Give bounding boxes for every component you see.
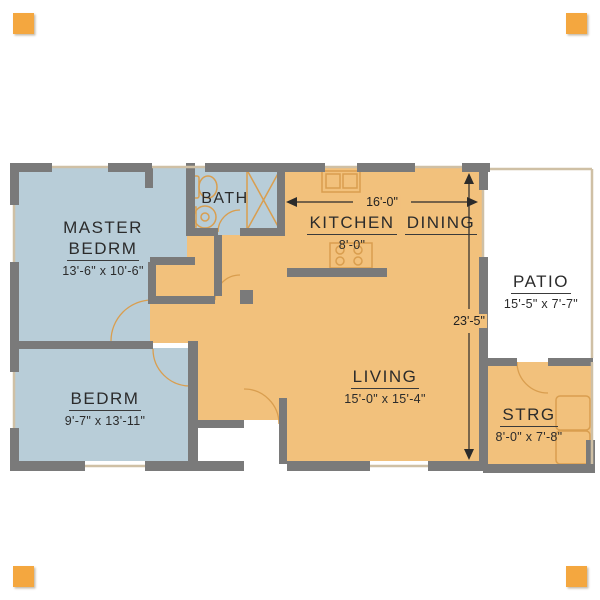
overall-width-dimension: 16'-0"	[364, 195, 400, 209]
master-bedroom-label: MASTER BEDRM 13'-6" x 10'-6"	[30, 217, 176, 278]
room-label: KITCHEN	[307, 212, 396, 235]
room-dimensions: 9'-7" x 13'-11"	[30, 414, 180, 428]
bedroom-label: BEDRM 9'-7" x 13'-11"	[30, 388, 180, 428]
room-dimensions: 8'-0" x 7'-8"	[477, 430, 581, 444]
kitchen-label: KITCHEN 8'-0"	[300, 212, 404, 252]
overall-height-dimension: 23'-5"	[451, 314, 487, 328]
storage-label: STRG 8'-0" x 7'-8"	[477, 404, 581, 444]
room-label: BEDRM	[69, 388, 142, 411]
dining-label: DINING	[399, 212, 483, 235]
room-dimensions: 13'-6" x 10'-6"	[30, 264, 176, 278]
room-label: LIVING	[351, 366, 420, 389]
bath-label: BATH	[194, 188, 256, 209]
room-dimensions: 15'-0" x 15'-4"	[325, 392, 445, 406]
room-label: DINING	[405, 212, 478, 235]
room-label: BEDRM	[67, 238, 140, 261]
room-label: PATIO	[511, 271, 571, 294]
room-label: BATH	[194, 188, 256, 209]
kitchen-counter	[287, 268, 387, 277]
living-label: LIVING 15'-0" x 15'-4"	[325, 366, 445, 406]
patio-label: PATIO 15'-5" x 7'-7"	[488, 271, 594, 311]
room-label: STRG	[500, 404, 557, 427]
floor-plan: MASTER BEDRM 13'-6" x 10'-6" BEDRM 9'-7"…	[0, 0, 600, 600]
room-dimensions: 15'-5" x 7'-7"	[488, 297, 594, 311]
room-label: MASTER	[30, 217, 176, 238]
room-dimensions: 8'-0"	[300, 238, 404, 252]
